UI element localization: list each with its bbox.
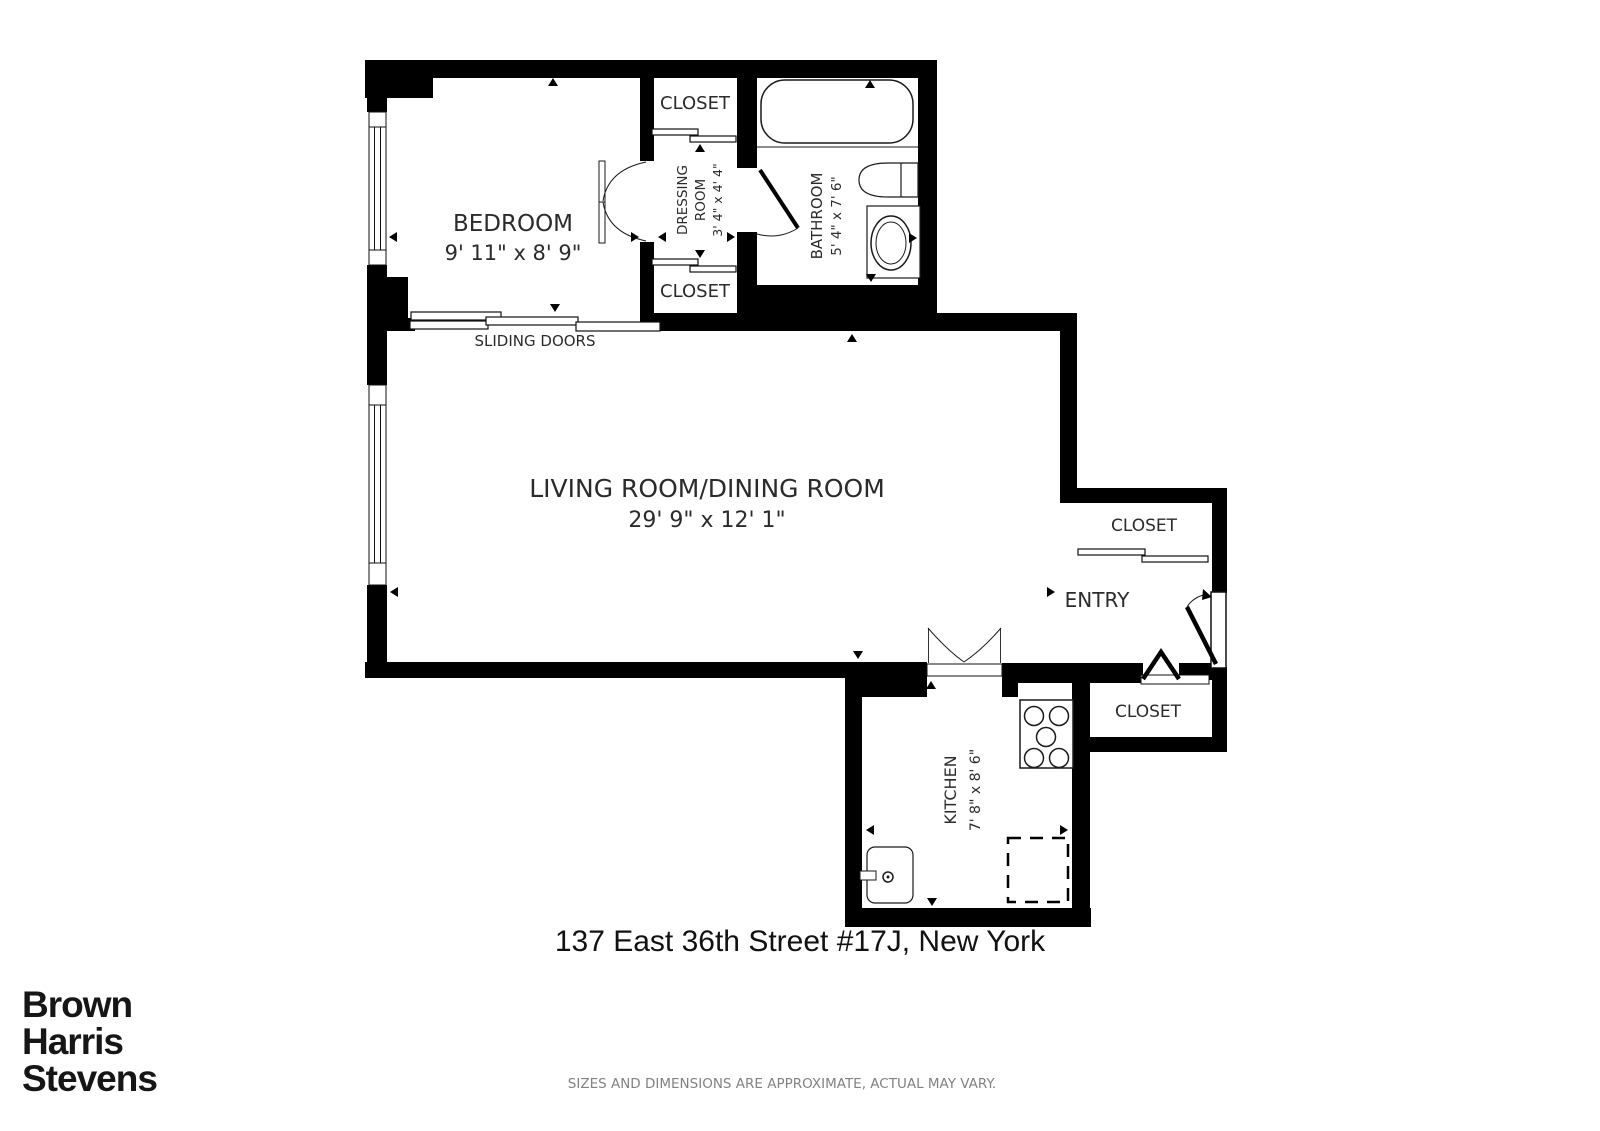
- dressing-room-label-1: DRESSING: [675, 165, 691, 235]
- living-room-window: [369, 385, 386, 585]
- closet-entry-upper-label: CLOSET: [1111, 516, 1178, 536]
- toilet: [867, 206, 920, 278]
- bedroom-double-door: [599, 161, 646, 243]
- closet-top-label: CLOSET: [660, 93, 731, 114]
- bathroom-dims: 5' 4" x 7' 6": [829, 176, 845, 255]
- logo-line-2: Harris: [22, 1023, 157, 1060]
- bedroom-dims: 9' 11" x 8' 9": [445, 241, 582, 265]
- closet-entry-lower-label: CLOSET: [1115, 702, 1182, 722]
- bedroom-window: [369, 112, 386, 265]
- stove: [1020, 700, 1073, 768]
- dressing-room-dims: 3' 4" x 4' 4": [710, 163, 725, 236]
- bathroom-door: [757, 170, 798, 236]
- closet-bottom-label: CLOSET: [660, 281, 731, 302]
- bedroom-label: BEDROOM: [453, 211, 573, 237]
- property-address: 137 East 36th Street #17J, New York: [0, 925, 1600, 959]
- refrigerator-dashed: [1008, 838, 1068, 902]
- sliding-doors: [410, 312, 660, 331]
- floorplan-page: BEDROOM 9' 11" x 8' 9" CLOSET CLOSET DRE…: [0, 0, 1600, 1131]
- sliding-doors-label: SLIDING DOORS: [475, 332, 596, 350]
- bathtub: [757, 80, 918, 147]
- kitchen-label: KITCHEN: [941, 755, 960, 824]
- logo-line-1: Brown: [22, 986, 157, 1023]
- dressing-room-label-2: ROOM: [693, 179, 709, 221]
- floorplan-drawing: BEDROOM 9' 11" x 8' 9" CLOSET CLOSET DRE…: [0, 0, 1600, 1131]
- bathroom-label: BATHROOM: [808, 173, 826, 260]
- living-room-dims: 29' 9" x 12' 1": [628, 508, 785, 533]
- kitchen-double-door: [927, 628, 1002, 676]
- disclaimer-text: SIZES AND DIMENSIONS ARE APPROXIMATE, AC…: [0, 1076, 1564, 1092]
- entry-door: [1187, 589, 1226, 668]
- living-room-label: LIVING ROOM/DINING ROOM: [529, 474, 885, 503]
- kitchen-dims: 7' 8" x 8' 6": [968, 749, 984, 831]
- kitchen-sink: [860, 847, 913, 903]
- bathroom-sink: [859, 163, 918, 197]
- entry-label: ENTRY: [1065, 588, 1130, 612]
